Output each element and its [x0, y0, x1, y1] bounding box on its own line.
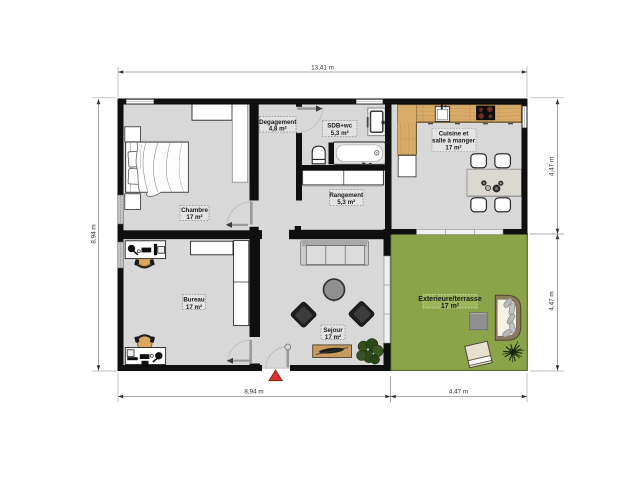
svg-text:17 m²: 17 m² [441, 303, 460, 310]
svg-text:17 m²: 17 m² [325, 334, 341, 341]
svg-text:Cuisine et: Cuisine et [439, 131, 469, 138]
svg-text:17 m²: 17 m² [445, 145, 461, 152]
svg-text:SDB+wc: SDB+wc [327, 123, 352, 130]
svg-text:Chambre: Chambre [181, 207, 208, 214]
svg-text:Bureau: Bureau [183, 297, 205, 304]
svg-text:13,41 m: 13,41 m [311, 65, 334, 72]
svg-text:17 m²: 17 m² [186, 304, 202, 311]
svg-text:5,3 m²: 5,3 m² [331, 130, 349, 137]
svg-text:5,3 m²: 5,3 m² [337, 199, 355, 206]
svg-text:salle à manger: salle à manger [432, 138, 476, 145]
svg-text:4,47 m: 4,47 m [449, 389, 468, 396]
svg-text:4,47 m: 4,47 m [549, 157, 556, 176]
svg-text:8,94 m: 8,94 m [244, 389, 263, 396]
svg-text:4,8 m²: 4,8 m² [269, 126, 287, 133]
svg-text:17 m²: 17 m² [186, 214, 202, 221]
svg-text:4,47 m: 4,47 m [549, 291, 556, 310]
svg-text:8,94 m: 8,94 m [91, 224, 98, 243]
